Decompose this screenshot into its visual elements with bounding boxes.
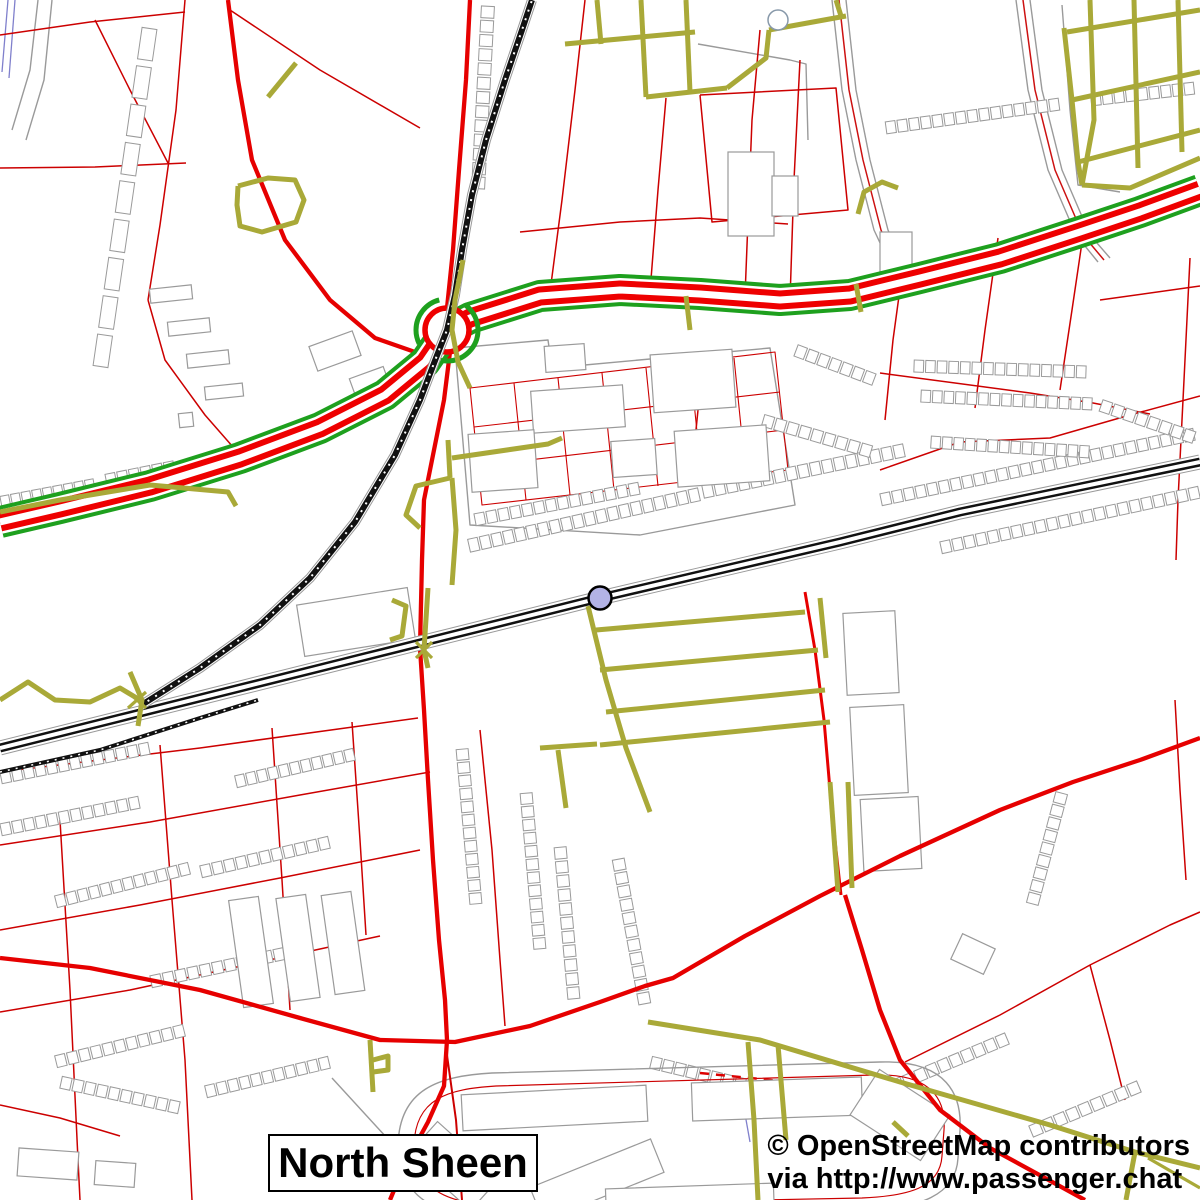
station-marker xyxy=(589,587,612,610)
map-attribution: © OpenStreetMap contributors via http://… xyxy=(767,1130,1190,1196)
place-label: North Sheen xyxy=(268,1134,538,1192)
terrace-rows xyxy=(0,6,1200,1137)
attribution-line2: via http://www.passenger.chat xyxy=(767,1163,1190,1196)
place-label-text: North Sheen xyxy=(278,1139,528,1187)
map-canvas[interactable] xyxy=(0,0,1200,1200)
map-stage: North Sheen © OpenStreetMap contributors… xyxy=(0,0,1200,1200)
attribution-line1: © OpenStreetMap contributors xyxy=(767,1130,1190,1163)
dual-carriageway xyxy=(0,190,1200,522)
pond xyxy=(768,10,788,30)
